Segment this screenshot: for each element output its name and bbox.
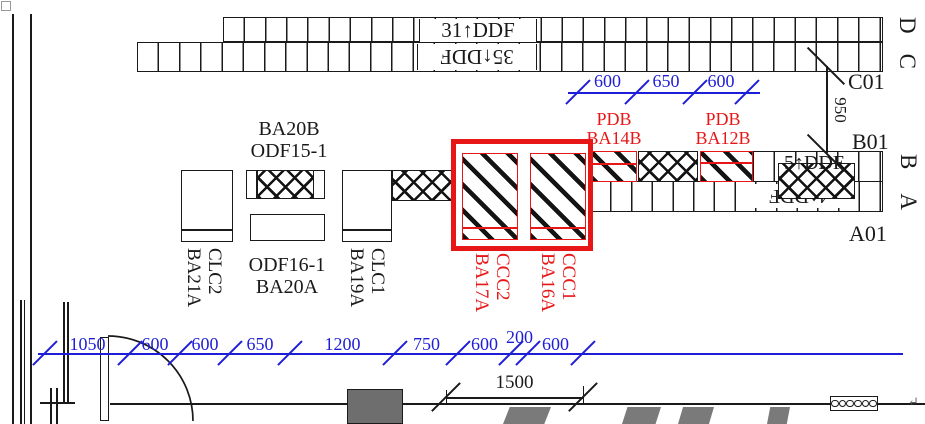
pdb-divider xyxy=(701,162,752,164)
outlet-dot xyxy=(854,400,862,408)
cabinet-ba21a xyxy=(181,170,233,242)
pdb-ba12b-box xyxy=(700,151,753,182)
label-ddf-5: 5↑DDF xyxy=(764,152,864,175)
row-letter-c: C xyxy=(892,54,920,69)
odf-end-panel-line xyxy=(313,171,315,198)
highlight-red-zone xyxy=(451,139,593,251)
odf16-frame xyxy=(250,214,325,241)
outlet-strip xyxy=(830,396,878,411)
dim-label: 600 xyxy=(516,334,596,355)
dim-line xyxy=(446,397,583,399)
dim-line xyxy=(826,66,828,153)
label-clc1-ba19a: CLC1 BA19A xyxy=(388,248,454,293)
label-ba20b-odf15: BA20B ODF15-1 xyxy=(249,119,329,162)
wall-bottom xyxy=(110,403,925,405)
outlet-dot xyxy=(839,400,847,408)
return-mark: ↵ xyxy=(908,394,919,410)
wall-left-outer xyxy=(12,14,14,424)
label-ccc1-ba16a: CCC1 BA16A xyxy=(579,253,645,298)
row-letter-b: B xyxy=(893,154,921,169)
outlet-dot xyxy=(846,400,854,408)
cabinet-divider xyxy=(343,229,391,231)
dim-label: 650 xyxy=(220,334,300,355)
wall-hatch-stub-1 xyxy=(503,407,551,424)
dim-label: 600 xyxy=(681,71,761,92)
rack-row-d xyxy=(223,17,883,42)
outlet-dot xyxy=(862,400,870,408)
dim-line xyxy=(568,92,760,94)
label-b01: B01 xyxy=(852,130,889,154)
pdb-divider xyxy=(592,163,636,165)
equipment-xhatch-2 xyxy=(638,151,698,182)
label-ddf-31: 31↑DDF xyxy=(419,19,537,42)
pdb-ba14b-box xyxy=(591,151,637,182)
floor-plan-drawing: ↵ 31↑DDF 35↑DDF 5↑DDF 4↑DDF BA20B ODF15-… xyxy=(0,0,925,424)
wall-hatch-stub-2 xyxy=(622,407,661,424)
label-a01: A01 xyxy=(849,222,887,246)
label-clc2-ba21a: CLC2 BA21A xyxy=(225,248,291,293)
label-ddf-35: 35↑DDF xyxy=(417,44,537,70)
wall-hatch-stub-4 xyxy=(767,407,790,424)
wall-corner-line-1 xyxy=(50,388,52,424)
label-row-letters-dc: D C xyxy=(920,17,925,45)
wall-corner-line-2 xyxy=(56,388,58,424)
odf15-hatch xyxy=(258,171,313,198)
wall-left-line-4 xyxy=(24,300,26,424)
wall-hatch-stub-3 xyxy=(678,407,714,424)
odf15-frame xyxy=(246,170,325,199)
dim-label: 1500 xyxy=(475,372,555,394)
row-letter-d: D xyxy=(892,17,920,34)
row-letter-a: A xyxy=(893,193,921,210)
outlet-dot xyxy=(869,400,877,408)
page-corner-mark xyxy=(1,1,11,11)
outlet-dot xyxy=(831,400,839,408)
wall-bottom-left-cap xyxy=(40,402,75,404)
dim-label: 1200 xyxy=(303,334,383,355)
cabinet-ba19a xyxy=(342,170,392,242)
structural-column xyxy=(347,389,403,424)
wall-left-inner xyxy=(30,14,32,424)
label-pdb-ba12b: PDB BA12B xyxy=(692,110,754,149)
label-c01: C01 xyxy=(848,70,885,94)
label-row-letters-ba: B A xyxy=(921,154,925,182)
cabinet-divider xyxy=(182,229,232,231)
wall-left-line-3 xyxy=(20,300,22,424)
equipment-xhatch-1 xyxy=(392,170,454,201)
label-pdb-ba14b: PDB BA14B xyxy=(583,110,645,149)
